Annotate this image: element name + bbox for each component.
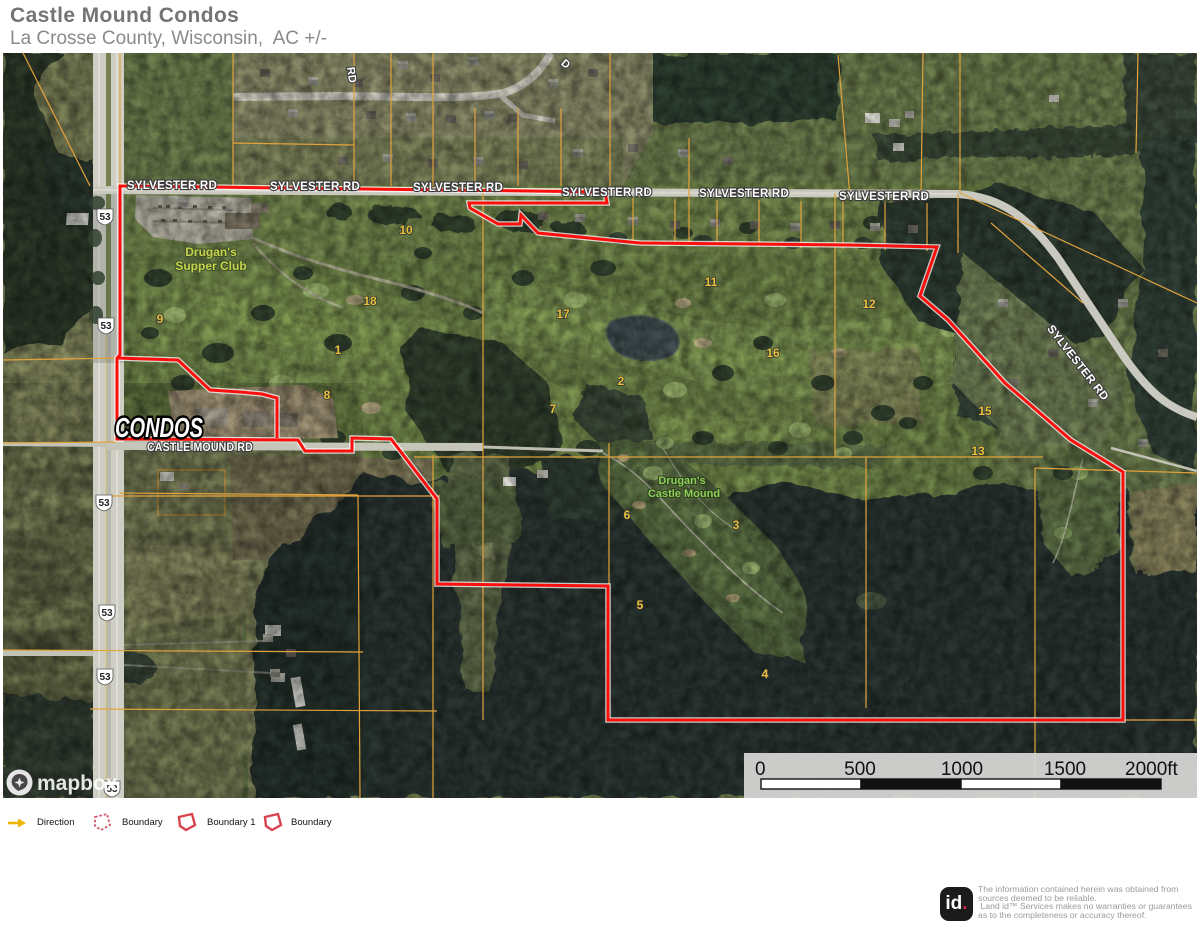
svg-text:7: 7 xyxy=(550,402,557,416)
svg-text:1: 1 xyxy=(335,343,342,357)
svg-text:11: 11 xyxy=(705,275,718,289)
svg-text:5: 5 xyxy=(637,598,644,612)
svg-text:0: 0 xyxy=(755,759,766,780)
svg-text:9: 9 xyxy=(157,312,164,326)
svg-text:Supper Club: Supper Club xyxy=(175,259,246,273)
svg-text:CASTLE MOUND RD: CASTLE MOUND RD xyxy=(147,442,253,454)
svg-text:15: 15 xyxy=(978,404,992,418)
svg-text:mapbox: mapbox xyxy=(37,772,118,795)
svg-text:6: 6 xyxy=(624,508,631,522)
svg-text:16: 16 xyxy=(766,346,780,360)
svg-text:CONDOS: CONDOS xyxy=(115,412,203,443)
svg-text:Drugan's: Drugan's xyxy=(658,475,705,487)
svg-text:13: 13 xyxy=(971,444,985,458)
svg-text:Drugan's: Drugan's xyxy=(185,245,237,259)
svg-text:1500: 1500 xyxy=(1044,759,1086,780)
svg-text:3: 3 xyxy=(733,518,740,532)
svg-text:2: 2 xyxy=(618,374,625,388)
svg-text:1000: 1000 xyxy=(941,759,983,780)
svg-text:SYLVESTER RD: SYLVESTER RD xyxy=(413,182,503,194)
svg-text:Castle Mound: Castle Mound xyxy=(648,488,720,500)
svg-text:SYLVESTER RD: SYLVESTER RD xyxy=(270,181,360,193)
svg-text:2000ft: 2000ft xyxy=(1125,759,1179,780)
svg-text:10: 10 xyxy=(399,223,413,237)
svg-text:17: 17 xyxy=(556,307,570,321)
svg-text:4: 4 xyxy=(762,667,769,681)
svg-text:SYLVESTER RD: SYLVESTER RD xyxy=(127,180,217,192)
svg-text:18: 18 xyxy=(363,294,377,308)
svg-text:RD: RD xyxy=(344,66,358,83)
svg-text:500: 500 xyxy=(844,759,876,780)
svg-text:SYLVESTER RD: SYLVESTER RD xyxy=(562,187,652,199)
svg-text:SYLVESTER RD: SYLVESTER RD xyxy=(839,191,929,203)
svg-text:SYLVESTER RD: SYLVESTER RD xyxy=(699,188,789,200)
svg-text:12: 12 xyxy=(862,297,876,311)
svg-text:8: 8 xyxy=(324,388,331,402)
